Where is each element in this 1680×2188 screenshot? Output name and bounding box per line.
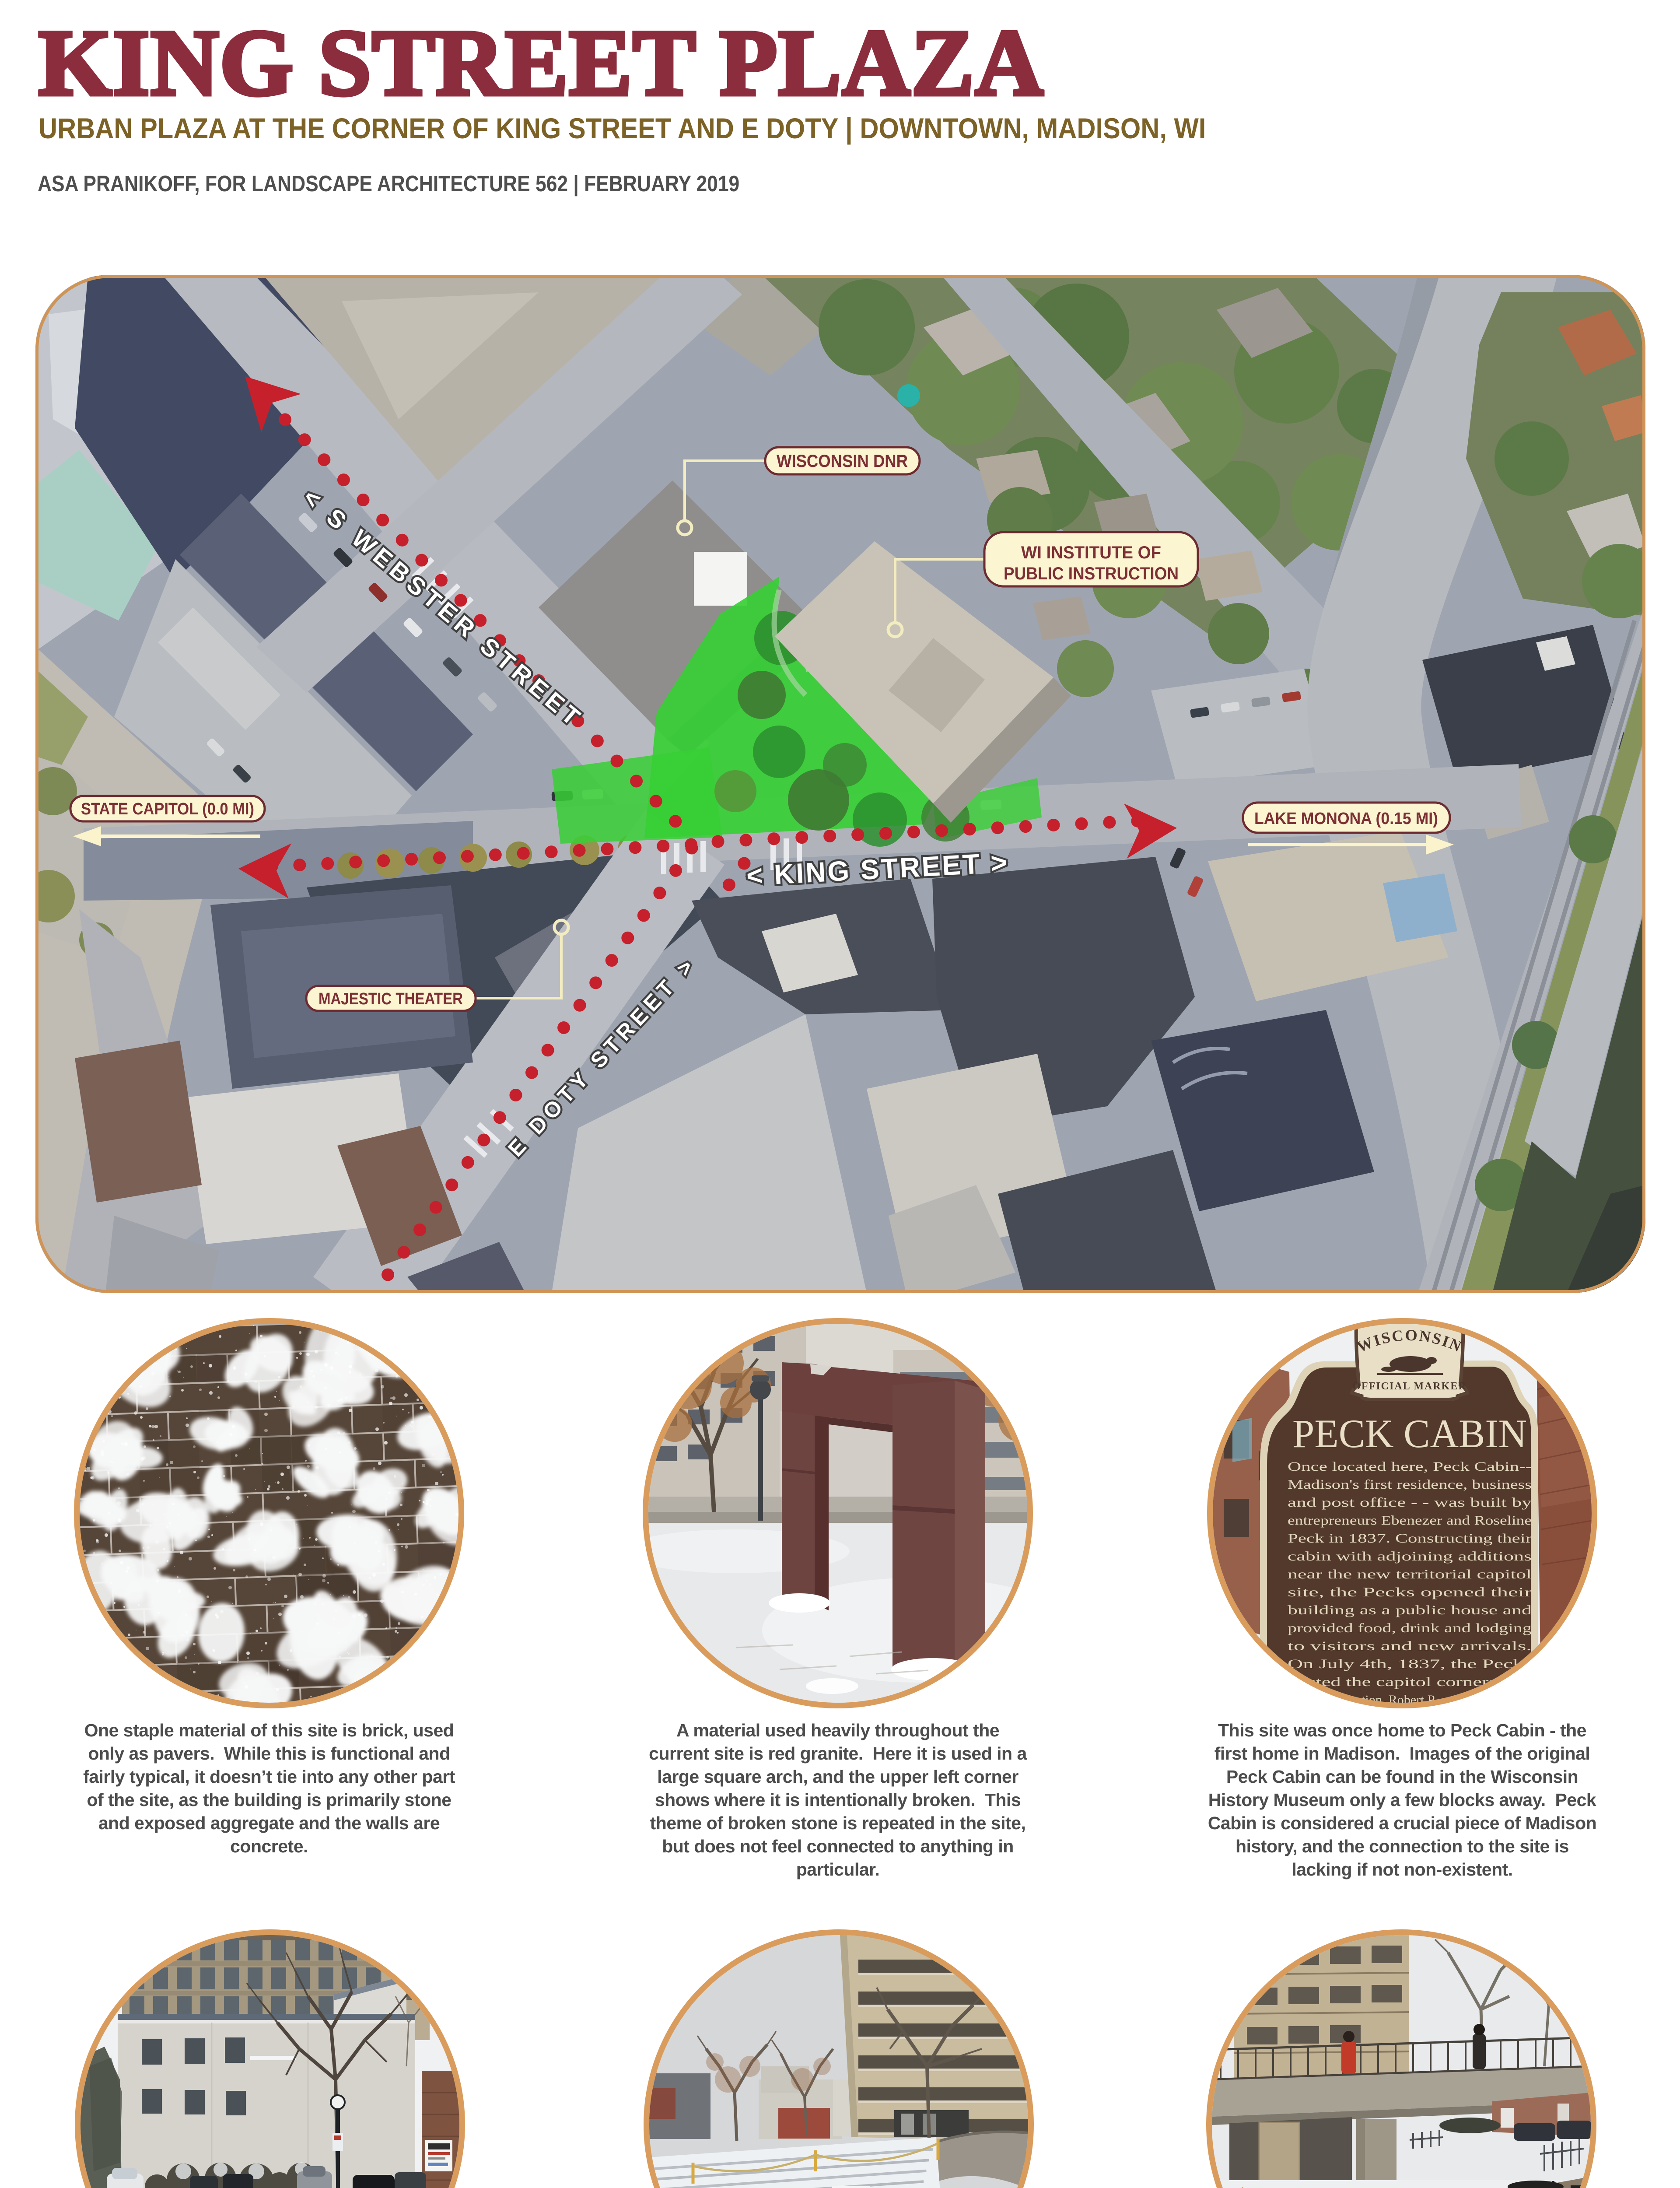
svg-text:Madison's first residence,: Madison's first residence, business	[1288, 1477, 1532, 1492]
svg-text:On July 4th, 1837, the: On July 4th, 1837, the Pecks	[1288, 1657, 1532, 1671]
svg-text:cabin with adjoining add: cabin with adjoining additions	[1288, 1549, 1532, 1564]
svg-text:and post office - - was bu: and post office - - was built by	[1288, 1495, 1532, 1510]
svg-text:Peck in 1837. Constructing: Peck in 1837. Constructing their	[1288, 1531, 1532, 1546]
svg-text:hosted the capitol corne: hosted the capitol cornerstone	[1288, 1675, 1532, 1689]
svg-text:MAJESTIC THEATER: MAJESTIC THEATER	[318, 990, 463, 1008]
svg-text:PUBLIC INSTRUCTION: PUBLIC INSTRUCTION	[1004, 564, 1179, 583]
svg-text:OFFICIAL MARKER: OFFICIAL MARKER	[1352, 1381, 1466, 1392]
svg-text:WISCONSIN DNR: WISCONSIN DNR	[777, 452, 908, 471]
svg-text:Once located here, Peck Ca: Once located here, Peck Cabin--	[1288, 1459, 1532, 1474]
svg-text:laying celebration. Robert: laying celebration. Robert P	[1288, 1693, 1435, 1703]
svg-text:near the new territorial c: near the new territorial capitol	[1288, 1567, 1532, 1581]
svg-text:PECK CABIN: PECK CABIN	[1292, 1411, 1527, 1456]
svg-text:provided food, drink and l: provided food, drink and lodging	[1288, 1621, 1532, 1635]
svg-text:LAKE MONONA (0.15 MI): LAKE MONONA (0.15 MI)	[1254, 810, 1438, 828]
svg-text:WI INSTITUTE OF: WI INSTITUTE OF	[1021, 543, 1161, 562]
svg-text:entrepreneurs Ebenezer and Ros: entrepreneurs Ebenezer and Roseline	[1288, 1513, 1532, 1528]
svg-text:site, the Pecks opened: site, the Pecks opened their	[1288, 1585, 1532, 1599]
svg-text:to visitors and new ar: to visitors and new arrivals.	[1288, 1639, 1532, 1653]
svg-text:building as a public house: building as a public house and	[1288, 1603, 1532, 1617]
svg-text:STATE CAPITOL (0.0 MI): STATE CAPITOL (0.0 MI)	[81, 800, 254, 818]
